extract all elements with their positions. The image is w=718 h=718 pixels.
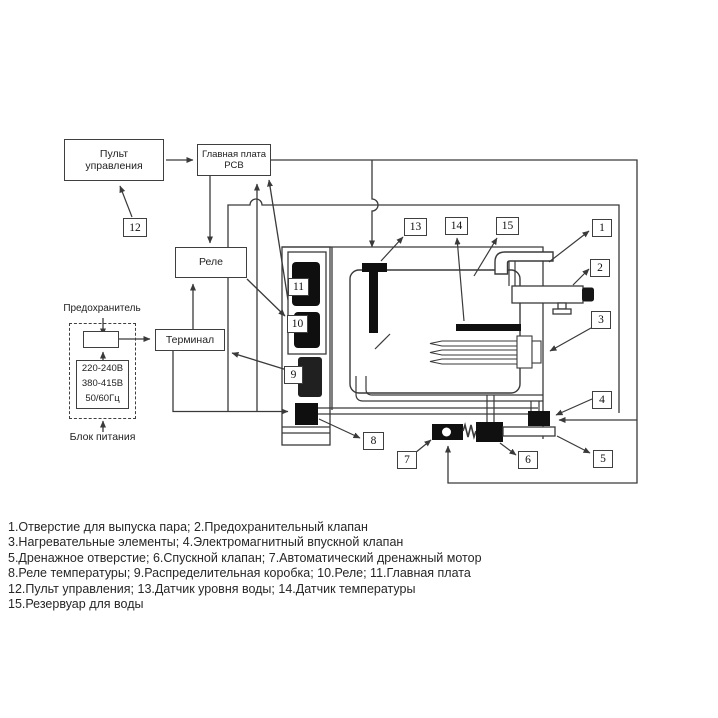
part-label-12: 12	[123, 218, 147, 237]
part-label-8: 8	[363, 432, 384, 450]
part-label-13: 13	[404, 218, 427, 236]
part-label-10: 10	[287, 315, 308, 333]
wiring-diagram: Пульт управления Главная плата PCB Реле …	[0, 0, 718, 718]
element-plate	[532, 341, 541, 363]
steam-outlet-pipe	[495, 252, 553, 274]
main-board-box: Главная плата PCB	[197, 144, 271, 176]
safety-valve	[512, 286, 594, 314]
temp-relay-module	[295, 403, 318, 425]
drain-valve	[476, 422, 503, 442]
relay-box: Реле	[175, 247, 247, 278]
part-label-15: 15	[496, 217, 519, 235]
part-label-11: 11	[288, 278, 309, 296]
part-label-4: 4	[592, 391, 612, 409]
valve-knob	[582, 288, 594, 302]
relay-label: Реле	[199, 256, 223, 268]
temperature-sensor	[456, 324, 521, 331]
voltage-line2: 380-415В	[82, 377, 123, 392]
part-label-1: 1	[592, 219, 612, 237]
legend: 1.Отверстие для выпуска пара; 2.Предохра…	[8, 520, 708, 612]
legend-line: 5.Дренажное отверстие; 6.Спускной клапан…	[8, 551, 708, 566]
legend-line: 15.Резервуар для воды	[8, 597, 708, 612]
element-flange	[517, 336, 532, 368]
part-label-2: 2	[590, 259, 610, 277]
motor-hub	[442, 428, 451, 437]
voltage-box: 220-240В 380-415В 50/60Гц	[76, 360, 129, 409]
voltage-line1: 220-240В	[82, 362, 123, 377]
drain-spring	[463, 425, 476, 437]
legend-line: 8.Реле температуры; 9.Распределительная …	[8, 566, 708, 581]
voltage-line3: 50/60Гц	[85, 392, 119, 407]
part-label-6: 6	[518, 451, 538, 469]
main-board-label2: PCB	[224, 160, 244, 171]
fuse-box	[83, 331, 119, 348]
inlet-valve	[528, 411, 550, 426]
part-label-3: 3	[591, 311, 611, 329]
control-panel-label: Пульт	[100, 148, 128, 160]
terminal-label: Терминал	[166, 334, 214, 346]
part-label-7: 7	[397, 451, 417, 469]
legend-line: 12.Пульт управления; 13.Датчик уровня во…	[8, 582, 708, 597]
power-supply-label: Блок питания	[60, 431, 145, 443]
legend-line: 1.Отверстие для выпуска пара; 2.Предохра…	[8, 520, 708, 535]
drain-outlet-pipe	[503, 427, 555, 436]
legend-line: 3.Нагревательные элементы; 4.Электромагн…	[8, 535, 708, 550]
main-board-label: Главная плата	[202, 149, 266, 160]
fuse-title: Предохранитель	[56, 303, 148, 314]
control-panel-box: Пульт управления	[64, 139, 164, 181]
part-label-9: 9	[284, 366, 303, 384]
terminal-box: Терминал	[155, 329, 225, 351]
control-panel-label2: управления	[85, 160, 142, 172]
part-label-5: 5	[593, 450, 613, 468]
part-label-14: 14	[445, 217, 468, 235]
heating-elements	[430, 336, 541, 368]
